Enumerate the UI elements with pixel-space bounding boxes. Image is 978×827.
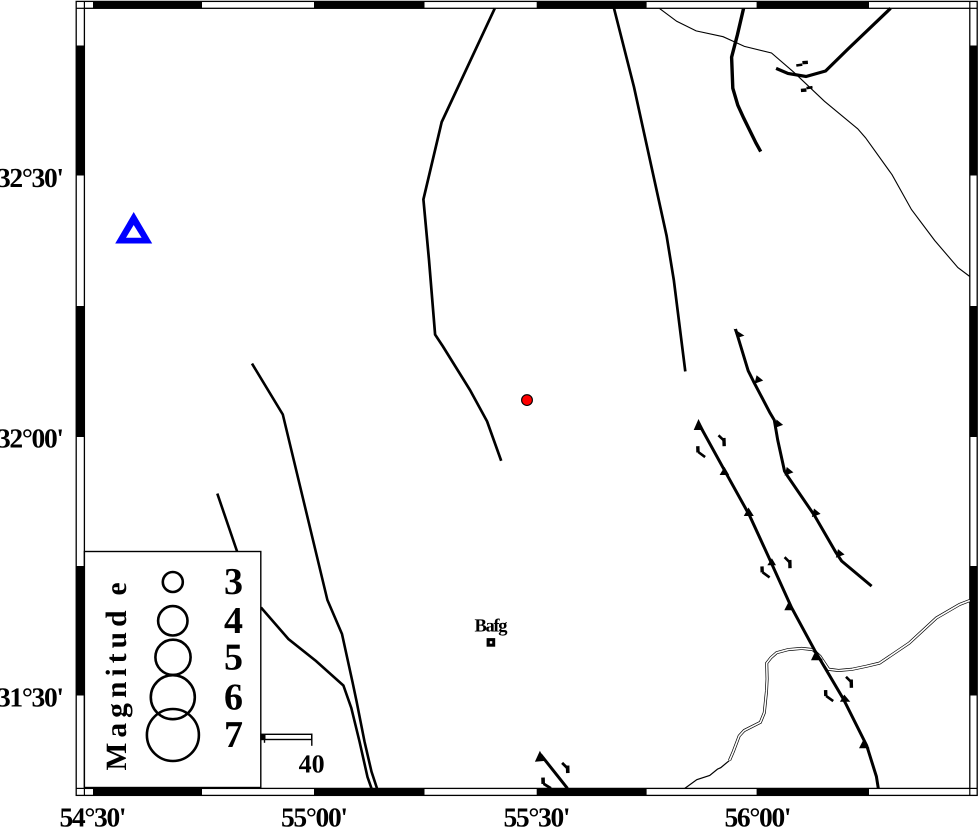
svg-text:Magnitud: Magnitud	[101, 610, 133, 771]
svg-text:6: 6	[224, 676, 243, 718]
svg-text:31°30': 31°30'	[0, 682, 64, 713]
svg-text:3: 3	[224, 561, 243, 603]
svg-text:7: 7	[224, 714, 243, 756]
svg-text:32°00': 32°00'	[0, 423, 64, 454]
svg-text:56°00': 56°00'	[725, 801, 792, 827]
svg-text:Bafg: Bafg	[475, 616, 509, 636]
svg-text:5: 5	[224, 637, 243, 679]
svg-text:32°30': 32°30'	[0, 162, 64, 193]
svg-text:55°30': 55°30'	[504, 801, 571, 827]
svg-text:55°00': 55°00'	[281, 801, 348, 827]
svg-text:e: e	[101, 582, 133, 595]
svg-text:54°30': 54°30'	[60, 801, 127, 827]
svg-text:40: 40	[299, 749, 325, 778]
